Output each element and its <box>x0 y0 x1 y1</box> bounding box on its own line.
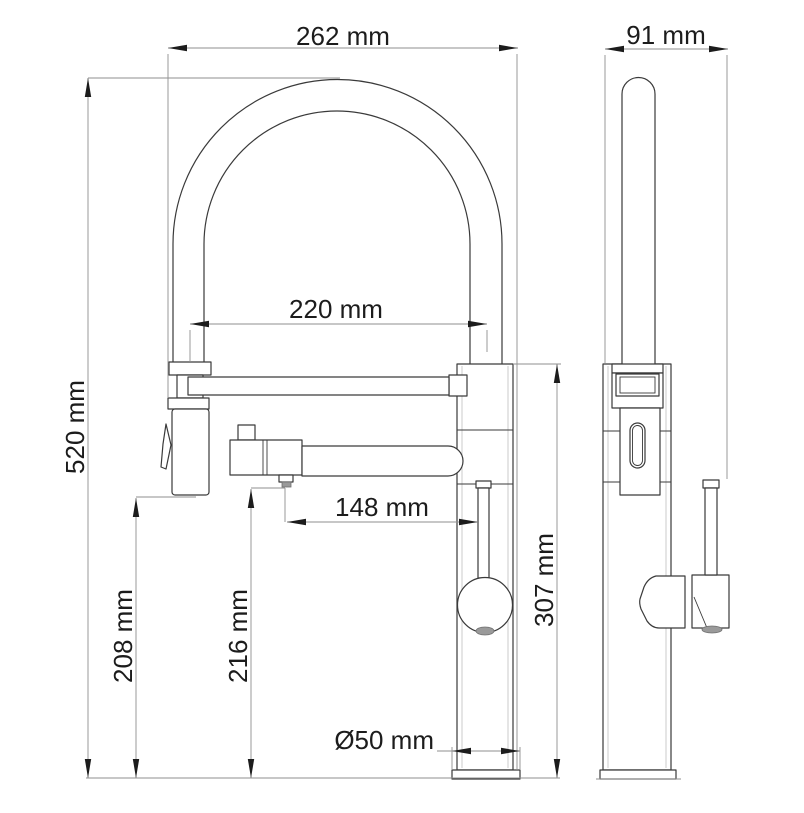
valve-body <box>230 440 302 475</box>
side-head-body <box>620 408 660 495</box>
side-view <box>600 78 729 780</box>
arrowhead-right-262 <box>499 45 518 51</box>
ext-lines-220 <box>190 330 487 362</box>
arrowhead-top-520 <box>85 78 91 97</box>
arrowhead-top-208 <box>133 498 139 517</box>
dim-label-body-height: 307 mm <box>529 533 559 627</box>
side-handle-block <box>692 575 729 628</box>
side-hose-tube <box>622 78 655 365</box>
spout-valve <box>230 425 302 487</box>
spout-bar <box>188 375 467 396</box>
dimension-body-height: 307 mm <box>513 364 561 778</box>
lever-rod <box>478 488 489 578</box>
spout-tube <box>302 446 463 476</box>
arrowhead-left-262 <box>168 45 187 51</box>
dim-label-side-width: 91 mm <box>626 20 705 50</box>
valve-top-boss <box>238 425 255 440</box>
technical-drawing-faucet: 262 mm 91 mm 220 mm 148 mm 520 mm <box>0 0 804 813</box>
ball-aerator <box>476 627 494 635</box>
side-lever-cap <box>703 480 719 488</box>
dimension-spout-height: 216 mm <box>223 488 285 778</box>
side-head-collar <box>612 364 663 373</box>
arrowhead-bottom-520 <box>85 759 91 778</box>
front-view <box>161 80 520 780</box>
dim-label-base-diameter: Ø50 mm <box>334 725 434 755</box>
side-lever-rod <box>705 488 717 575</box>
dim-label-spout-reach: 148 mm <box>335 492 429 522</box>
arrowhead-left-220 <box>190 321 209 327</box>
handle-ball <box>458 578 513 633</box>
dimension-hose-span: 220 mm <box>190 294 487 362</box>
spray-head-body <box>172 409 209 495</box>
side-aerator <box>702 626 722 633</box>
hose-inner-arc <box>204 111 470 364</box>
side-base-flange <box>600 770 676 779</box>
dim-label-overall-height: 520 mm <box>60 380 90 474</box>
side-spray-head <box>612 364 663 495</box>
arrowhead-left-148 <box>287 519 306 525</box>
ground-baseline <box>86 778 681 779</box>
arrowhead-right-91 <box>709 46 728 52</box>
nozzle-upper <box>279 475 293 482</box>
spout-bar-tube <box>188 377 449 395</box>
dim-label-spray-head-height: 208 mm <box>108 589 138 683</box>
arrowhead-top-216 <box>248 489 254 508</box>
dimension-spout-reach: 148 mm <box>285 488 478 525</box>
arrowhead-top-307 <box>554 364 560 383</box>
side-handle-hex <box>640 576 685 628</box>
dim-label-hose-span: 220 mm <box>289 294 383 324</box>
dim-label-spout-height: 216 mm <box>223 589 253 683</box>
lever-cap <box>476 481 491 488</box>
spray-head-clip <box>161 424 171 469</box>
arrowhead-bottom-208 <box>133 759 139 778</box>
dim-label-overall-width: 262 mm <box>296 21 390 51</box>
spray-head-collar-top <box>169 362 211 375</box>
spout-bar-socket <box>449 375 467 396</box>
arrowhead-bottom-216 <box>248 759 254 778</box>
arrowhead-left-91 <box>605 46 624 52</box>
dimension-spray-head-height: 208 mm <box>108 497 196 778</box>
nozzle-aerator <box>282 482 291 487</box>
drawing-svg: 262 mm 91 mm 220 mm 148 mm 520 mm <box>0 0 804 813</box>
arrowhead-right-220 <box>468 321 487 327</box>
arrowhead-bottom-307 <box>554 759 560 778</box>
spray-head-collar-bottom <box>168 398 209 409</box>
